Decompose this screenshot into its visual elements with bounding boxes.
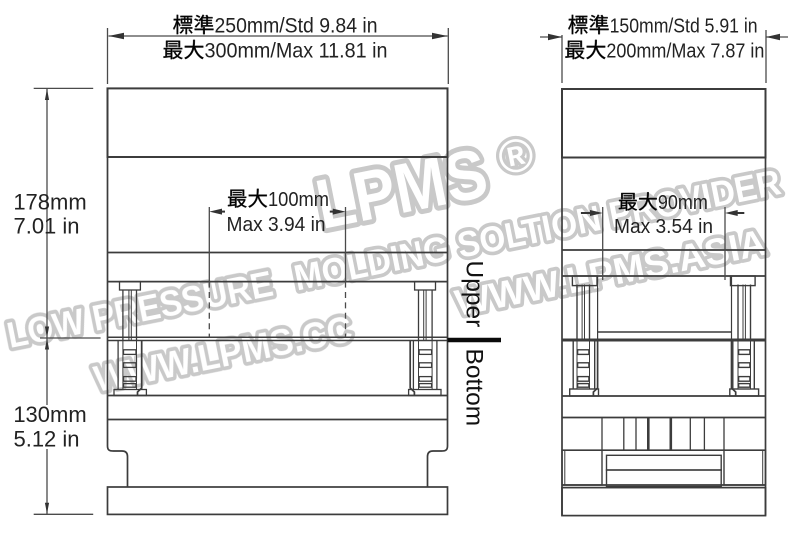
svg-text:90mm: 90mm	[658, 192, 708, 214]
svg-text:200mm/Max 7.87 in: 200mm/Max 7.87 in	[606, 41, 764, 63]
svg-text:Max 3.94 in: Max 3.94 in	[227, 214, 326, 236]
svg-text:5.12 in: 5.12 in	[13, 427, 79, 452]
svg-text:100mm: 100mm	[268, 188, 329, 211]
svg-text:Max 3.54 in: Max 3.54 in	[614, 216, 713, 238]
svg-text:178mm: 178mm	[13, 190, 86, 215]
svg-text:130mm: 130mm	[13, 402, 86, 427]
svg-text:7.01 in: 7.01 in	[13, 213, 79, 238]
svg-text:Upper: Upper	[461, 261, 488, 328]
svg-text:Bottom: Bottom	[461, 349, 488, 427]
svg-text:150mm/Std 5.91 in: 150mm/Std 5.91 in	[610, 16, 758, 38]
svg-text:300mm/Max 11.81 in: 300mm/Max 11.81 in	[205, 40, 388, 63]
svg-text:250mm/Std 9.84 in: 250mm/Std 9.84 in	[215, 15, 378, 38]
